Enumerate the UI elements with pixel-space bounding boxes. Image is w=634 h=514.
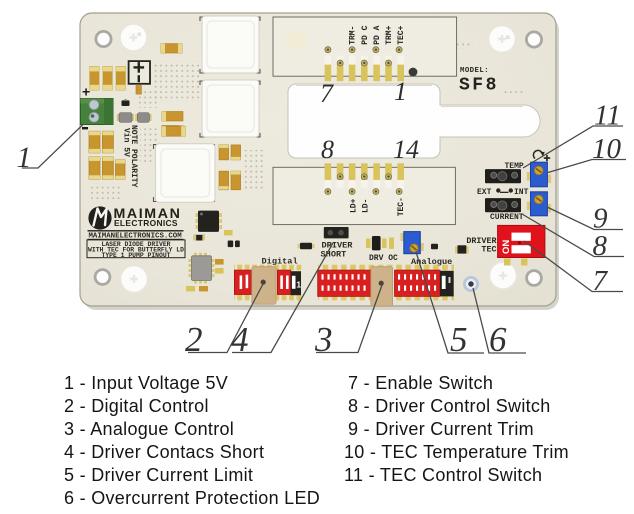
svg-text:MODEL:: MODEL:: [460, 67, 489, 75]
svg-text:PD C: PD C: [361, 25, 370, 44]
svg-text:ELECTRONICS: ELECTRONICS: [114, 218, 178, 228]
svg-text:7 - Enable Switch: 7 - Enable Switch: [348, 373, 493, 393]
svg-text:LD-: LD-: [362, 199, 371, 213]
svg-text:TRM+: TRM+: [385, 25, 394, 44]
svg-text:TEC+: TEC+: [397, 25, 406, 44]
svg-text:1: 1: [394, 77, 407, 106]
svg-text:INT: INT: [514, 188, 529, 197]
svg-text:3 - Analogue Control: 3 - Analogue Control: [64, 419, 234, 439]
svg-text:5 - Driver Current Limit: 5 - Driver Current Limit: [64, 465, 253, 485]
svg-text:2 - Digital Control: 2 - Digital Control: [64, 396, 209, 416]
svg-text:+: +: [82, 84, 90, 100]
svg-text:4 - Driver Contacs Short: 4 - Driver Contacs Short: [64, 442, 264, 462]
svg-text:PD A: PD A: [373, 25, 382, 44]
svg-text:8: 8: [593, 230, 608, 262]
svg-text:DRV OC: DRV OC: [369, 254, 398, 263]
svg-text:6 - Overcurrent Protection LED: 6 - Overcurrent Protection LED: [64, 488, 320, 508]
svg-text:11 - TEC Control Switch: 11 - TEC Control Switch: [344, 465, 542, 485]
svg-text:Vin 5V: Vin 5V: [122, 128, 131, 157]
svg-text:TEC-: TEC-: [397, 197, 406, 216]
svg-text:TRM-: TRM-: [349, 26, 358, 45]
svg-text:11: 11: [594, 100, 621, 132]
svg-text:1 - Input Voltage 5V: 1 - Input Voltage 5V: [64, 373, 228, 393]
svg-text:TEC: TEC: [481, 245, 496, 255]
svg-text:TYPE 1 PUMP PINOUT: TYPE 1 PUMP PINOUT: [101, 252, 170, 259]
svg-text:CURRENT: CURRENT: [490, 213, 524, 222]
svg-text:7: 7: [593, 265, 609, 297]
svg-text:10: 10: [592, 133, 622, 165]
svg-text:LD+: LD+: [349, 198, 358, 213]
svg-text:10 - TEC Temperature Trim: 10 - TEC Temperature Trim: [344, 442, 569, 462]
svg-text:SF8: SF8: [459, 76, 499, 96]
svg-text:7: 7: [320, 79, 334, 108]
svg-text:9 - Driver Current Trim: 9 - Driver Current Trim: [348, 419, 534, 439]
svg-text:1: 1: [17, 141, 32, 174]
svg-text:14: 14: [393, 135, 419, 164]
svg-text:8 - Driver Control Switch: 8 - Driver Control Switch: [348, 396, 551, 416]
svg-text:8: 8: [321, 135, 334, 164]
svg-text:EXT: EXT: [477, 188, 492, 197]
svg-text:ON: ON: [501, 240, 512, 254]
svg-text:1: 1: [296, 280, 301, 290]
